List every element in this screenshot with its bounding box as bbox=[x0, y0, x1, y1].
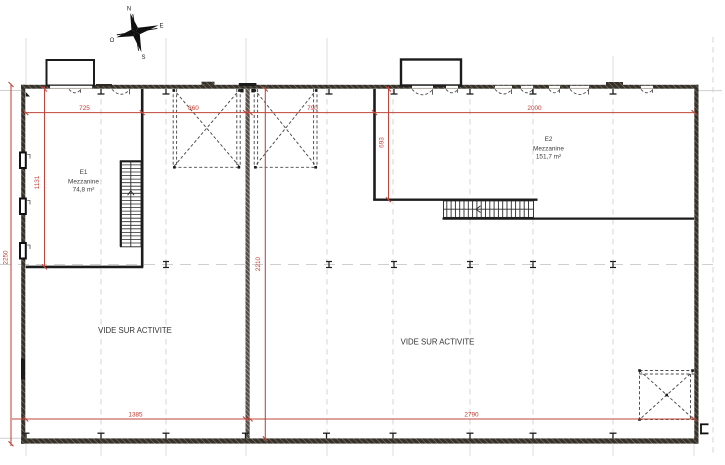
svg-text:790: 790 bbox=[307, 105, 318, 112]
svg-text:693: 693 bbox=[379, 137, 386, 148]
svg-text:O: O bbox=[110, 38, 115, 44]
svg-text:2790: 2790 bbox=[464, 412, 479, 419]
svg-text:725: 725 bbox=[79, 105, 90, 112]
svg-text:VIDE SUR ACTIVITE: VIDE SUR ACTIVITE bbox=[401, 338, 475, 347]
svg-text:74,8 m²: 74,8 m² bbox=[73, 187, 95, 194]
svg-text:N: N bbox=[127, 7, 131, 13]
svg-text:151,7 m²: 151,7 m² bbox=[536, 154, 561, 161]
svg-text:E: E bbox=[159, 24, 163, 30]
svg-text:1385: 1385 bbox=[128, 412, 143, 419]
svg-text:2210: 2210 bbox=[255, 256, 262, 271]
svg-text:2000: 2000 bbox=[527, 105, 542, 112]
svg-text:VIDE SUR ACTIVITE: VIDE SUR ACTIVITE bbox=[98, 326, 172, 335]
svg-text:Mezzanine: Mezzanine bbox=[533, 146, 564, 153]
svg-text:E2: E2 bbox=[545, 136, 553, 143]
svg-text:1131: 1131 bbox=[34, 175, 41, 189]
svg-text:2250: 2250 bbox=[3, 250, 10, 265]
svg-text:860: 860 bbox=[188, 105, 199, 112]
svg-text:E1: E1 bbox=[80, 169, 88, 176]
svg-text:S: S bbox=[141, 55, 145, 61]
svg-text:Mezzanine: Mezzanine bbox=[68, 179, 99, 186]
